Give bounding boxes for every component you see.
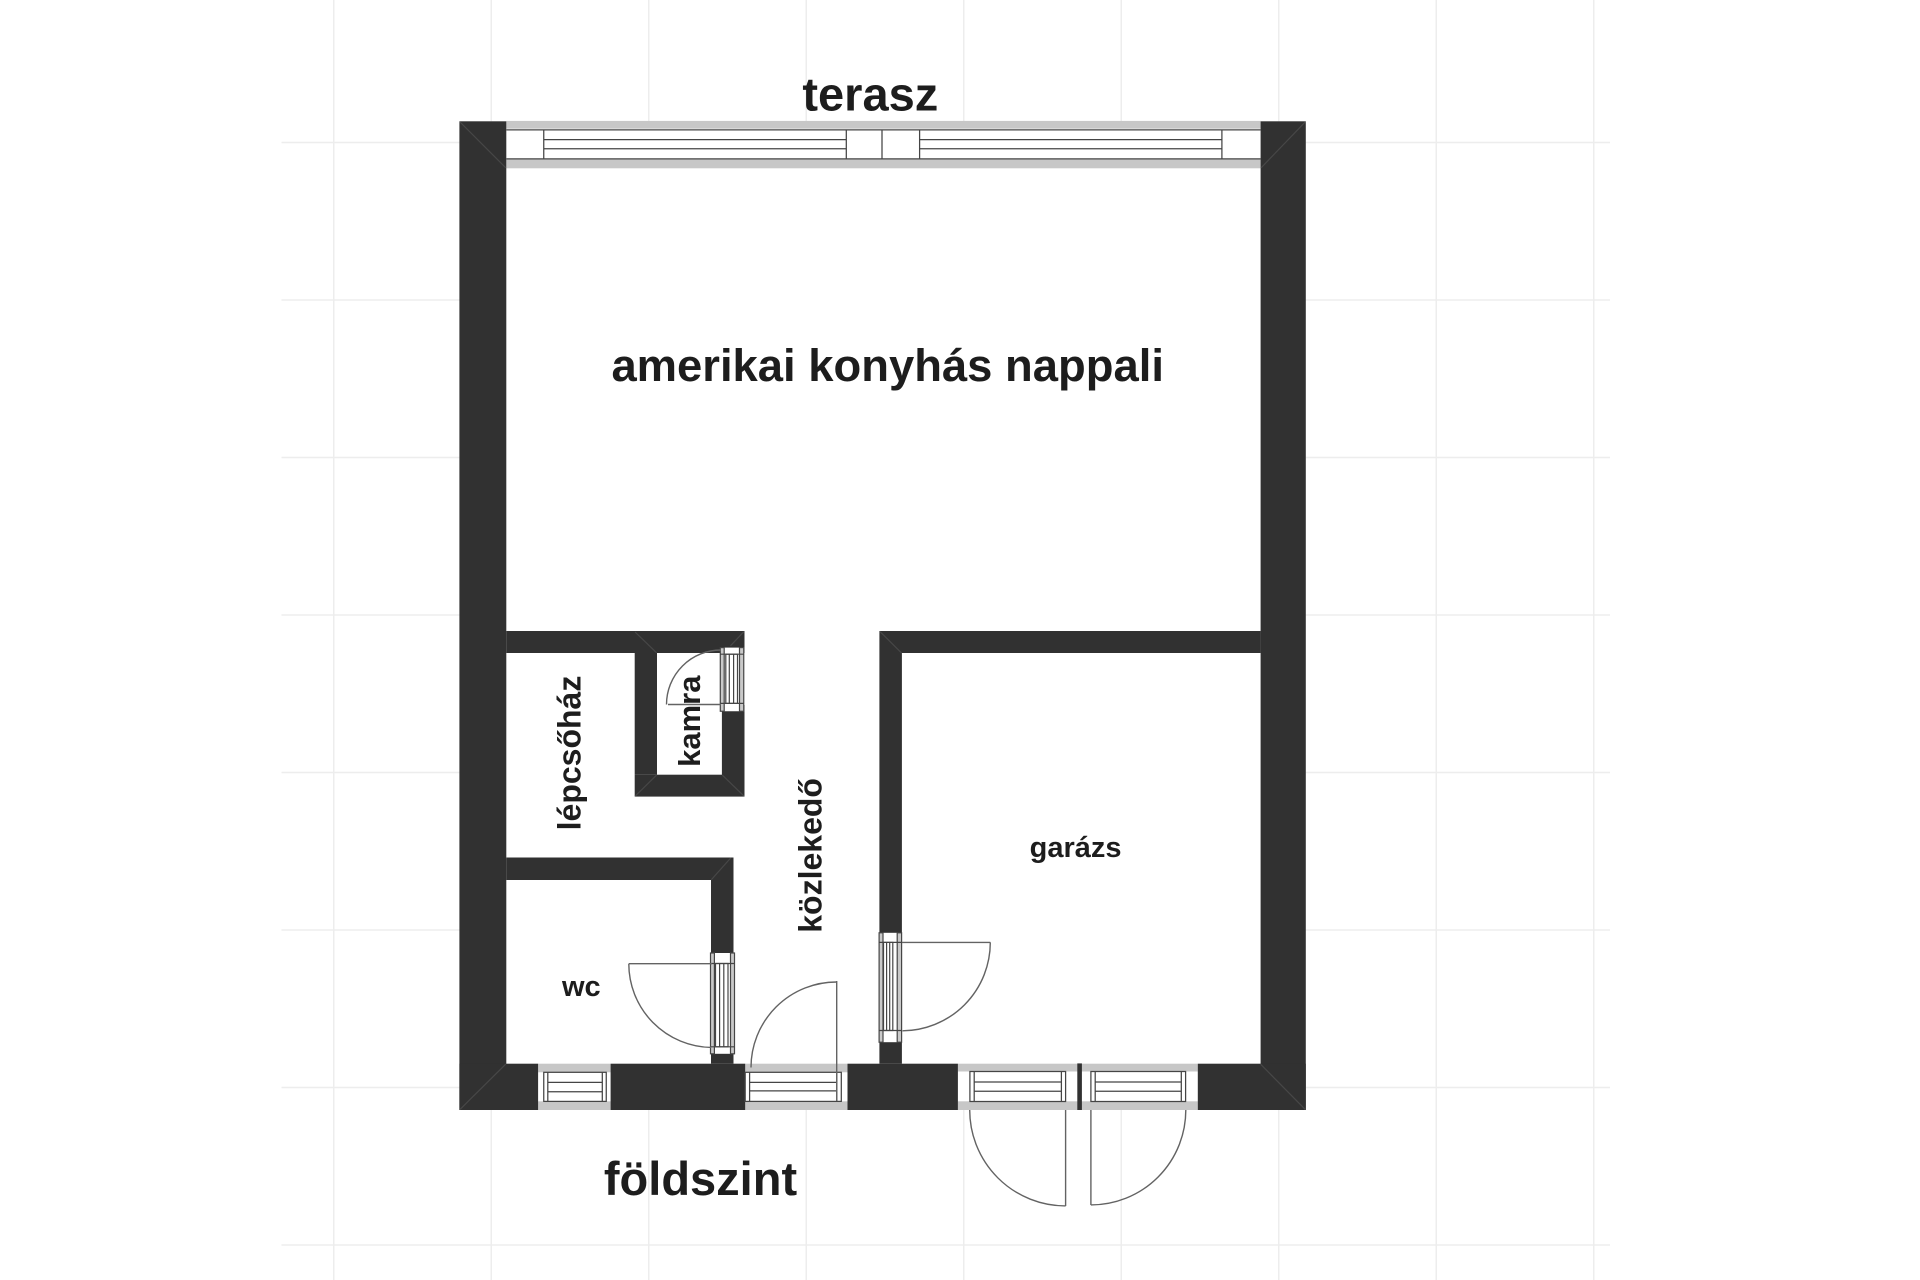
svg-text:közlekedő: közlekedő bbox=[793, 778, 829, 933]
svg-text:földszint: földszint bbox=[604, 1152, 798, 1205]
svg-text:amerikai konyhás nappali: amerikai konyhás nappali bbox=[611, 340, 1164, 391]
svg-text:garázs: garázs bbox=[1030, 832, 1122, 864]
svg-text:terasz: terasz bbox=[802, 68, 938, 121]
svg-text:lépcsőház: lépcsőház bbox=[552, 676, 588, 831]
svg-text:wc: wc bbox=[561, 971, 601, 1003]
svg-text:kamra: kamra bbox=[672, 675, 707, 767]
